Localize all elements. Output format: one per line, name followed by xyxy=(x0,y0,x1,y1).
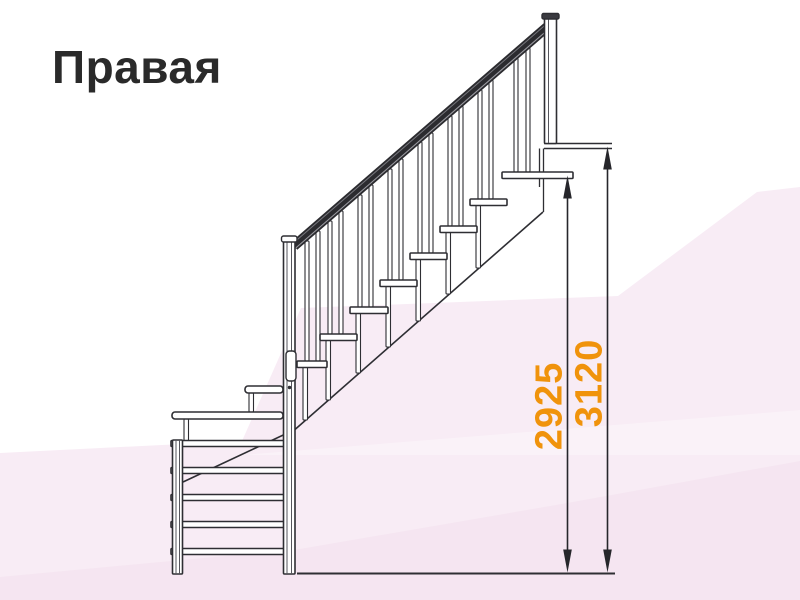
baluster xyxy=(399,159,403,280)
lower-flight-tread-edge xyxy=(171,468,290,474)
baluster xyxy=(328,221,332,334)
tread-support xyxy=(416,260,421,322)
tread-7 xyxy=(470,199,507,206)
newel-post-top xyxy=(545,17,557,144)
lower-flight-tread-edge xyxy=(171,495,290,501)
tread-support xyxy=(326,341,331,401)
baluster xyxy=(489,80,493,199)
baluster xyxy=(448,116,452,226)
tread-support xyxy=(446,233,451,295)
baluster xyxy=(418,142,422,253)
dim-label-2925: 2925 xyxy=(529,362,571,451)
baluster xyxy=(459,106,463,226)
tread-5 xyxy=(410,253,447,260)
tread-support xyxy=(303,367,308,420)
baluster xyxy=(358,195,362,307)
tread-top-landing xyxy=(502,172,573,179)
baluster xyxy=(305,241,309,361)
tread-4 xyxy=(380,280,417,287)
tread-support xyxy=(476,206,481,269)
bolt-dot xyxy=(288,386,291,389)
post-bracket xyxy=(286,351,296,381)
baluster xyxy=(429,133,433,253)
baluster xyxy=(478,90,482,199)
page-title: Правая xyxy=(52,42,222,93)
tread-6 xyxy=(440,226,477,233)
winder-tread-wide xyxy=(172,412,283,419)
newel-post-lower-left xyxy=(173,440,183,574)
post-cap-top xyxy=(542,14,559,20)
tread-1 xyxy=(297,361,327,368)
baluster xyxy=(388,169,392,280)
tread-2 xyxy=(320,334,357,341)
baluster xyxy=(369,185,373,307)
tread-support xyxy=(356,314,361,374)
newel-post-middle xyxy=(284,237,296,574)
baluster xyxy=(526,48,530,172)
staircase-diagram: 29253120 Правая xyxy=(0,0,800,600)
baluster xyxy=(339,211,343,334)
lower-flight-tread-edge xyxy=(171,441,290,447)
post-cap-middle xyxy=(282,236,298,242)
baluster xyxy=(316,231,320,361)
winder-support xyxy=(249,393,254,412)
lower-flight-tread-edge xyxy=(171,522,290,528)
baluster xyxy=(514,58,518,172)
arrowhead-up-icon xyxy=(603,147,612,170)
dim-label-3120: 3120 xyxy=(569,339,611,428)
winder-tread-upper xyxy=(245,386,283,393)
tread-3 xyxy=(350,307,388,314)
winder-support xyxy=(184,419,189,441)
lower-flight-tread-edge xyxy=(171,549,290,555)
tread-support xyxy=(386,287,391,348)
